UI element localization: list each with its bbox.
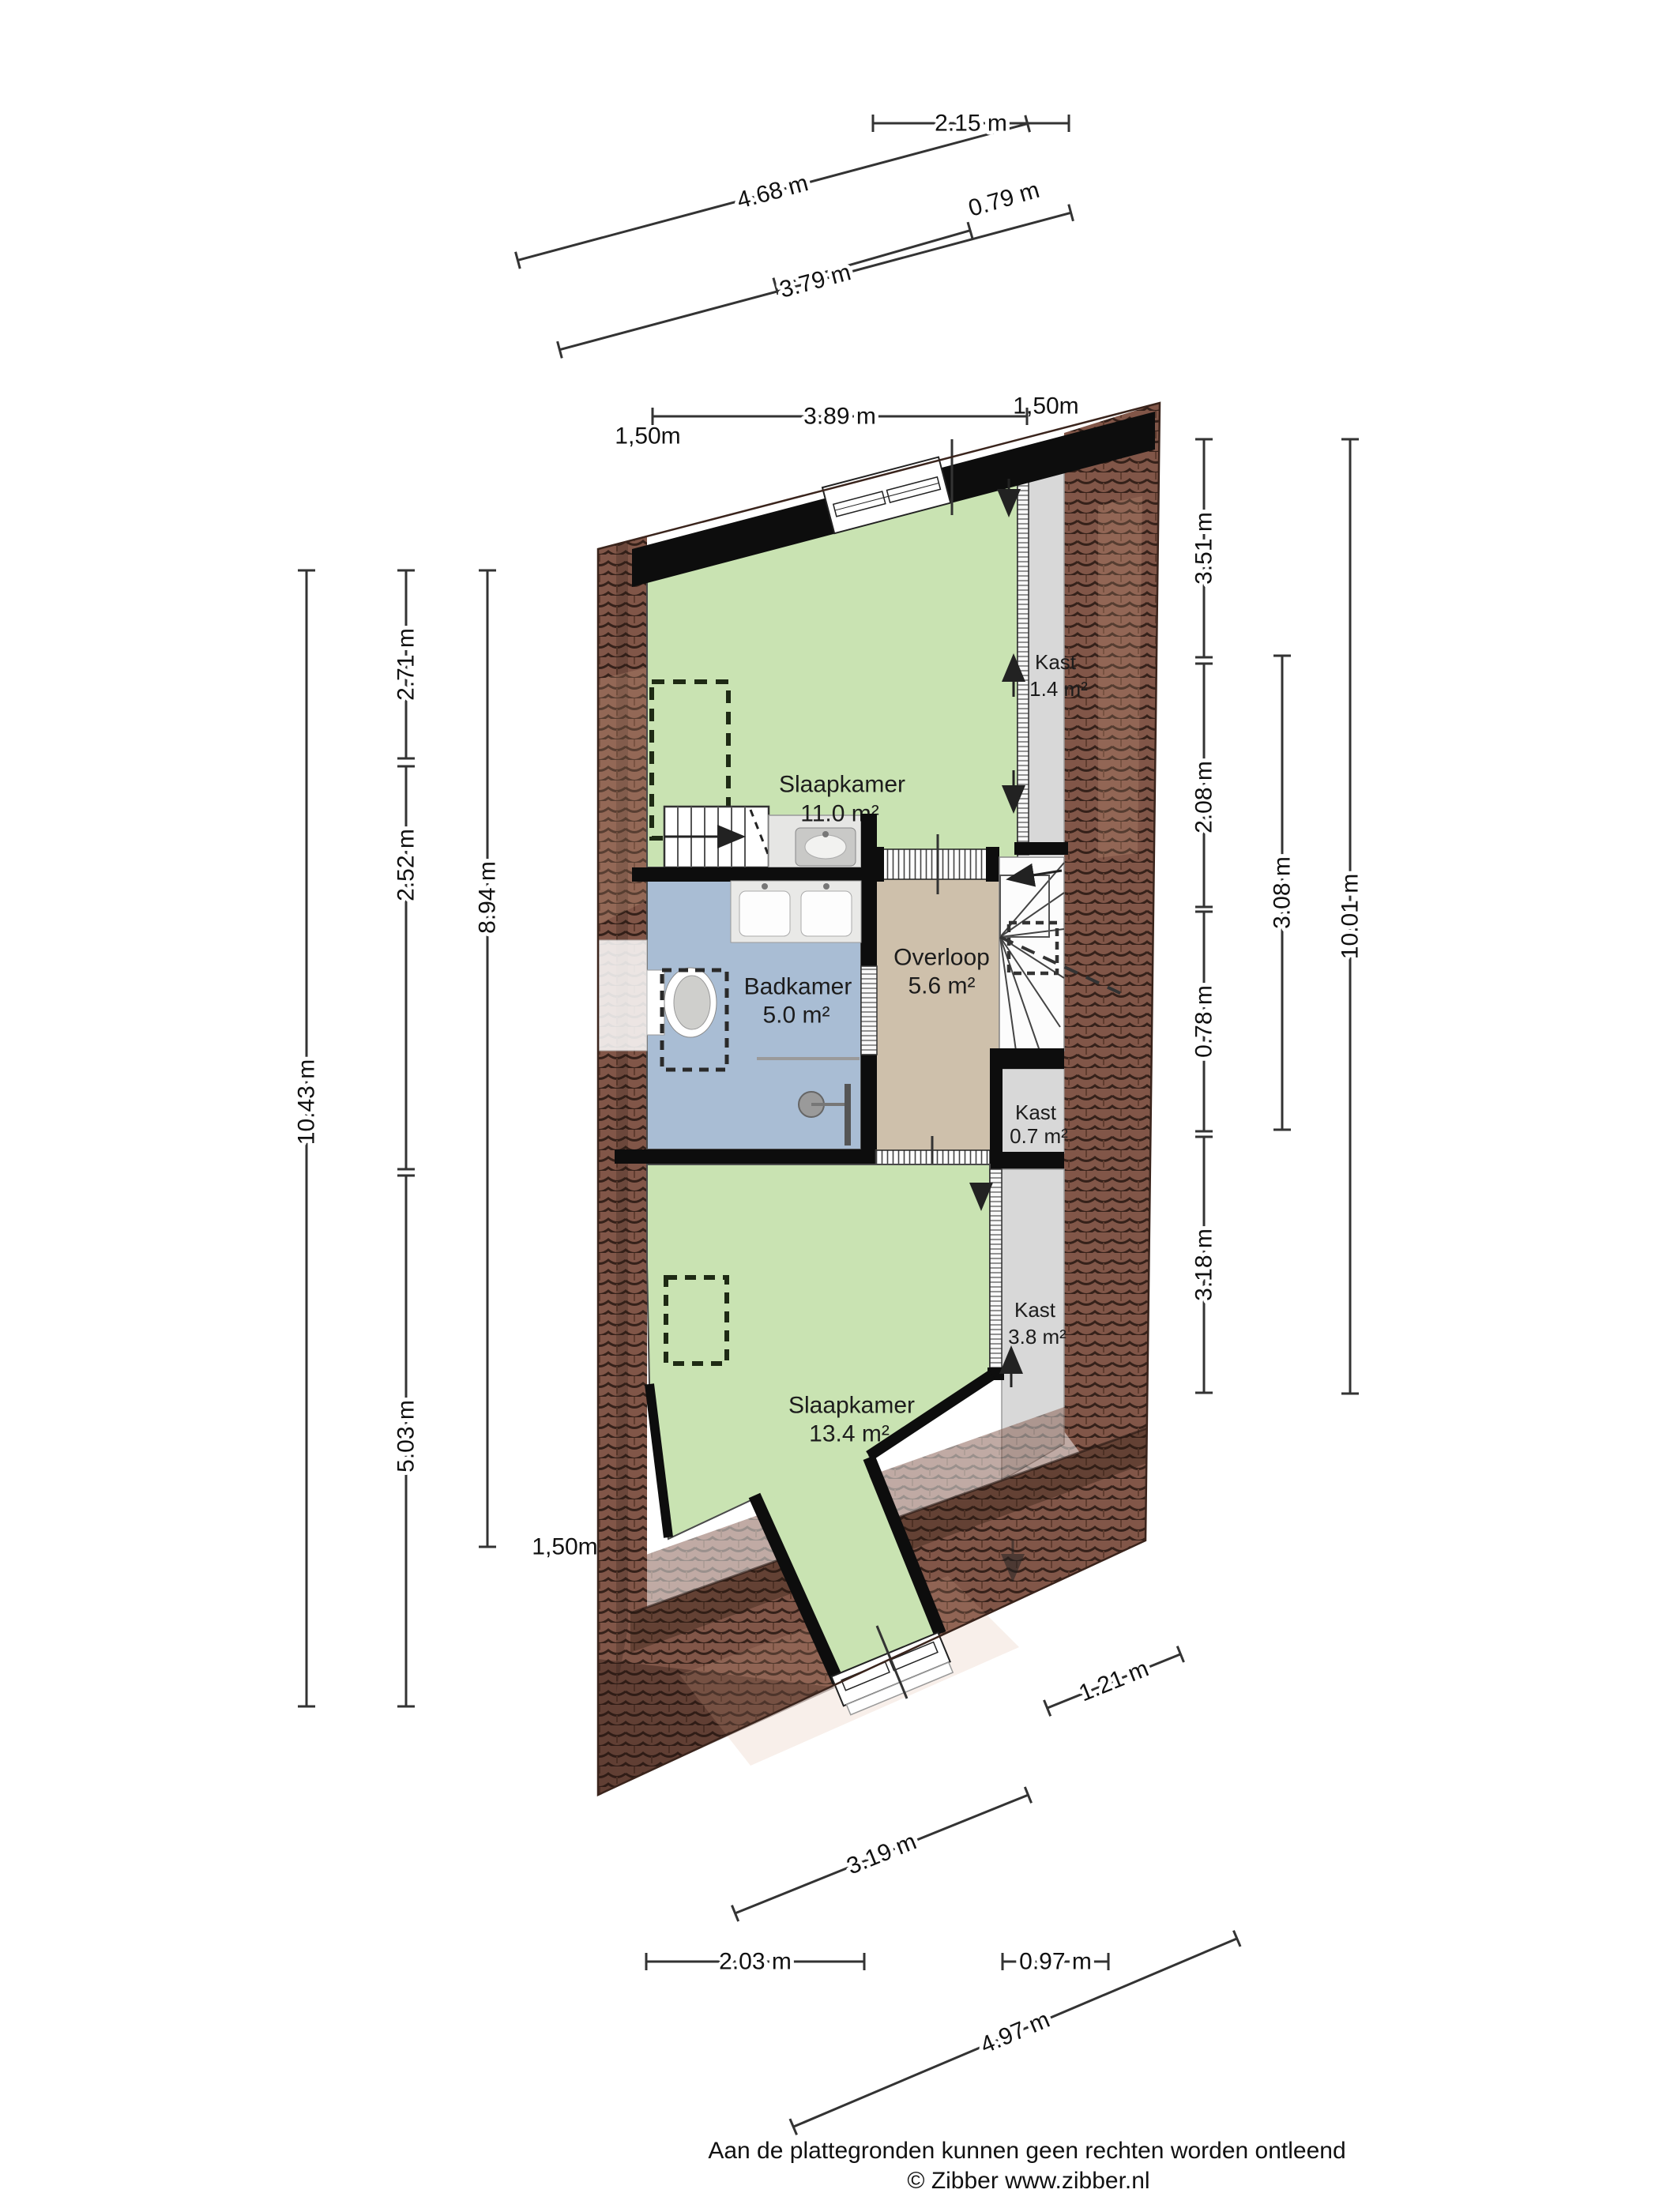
svg-text:0.79 m: 0.79 m	[965, 177, 1042, 222]
height-mark-left: 1,50m	[615, 423, 680, 450]
sink-basin	[739, 891, 790, 936]
room-kast-3-area: 3.8 m²	[1008, 1325, 1066, 1349]
dim-10-01: 10.01 m	[1337, 439, 1364, 1394]
dim-3-08: 3.08 m	[1270, 656, 1296, 1130]
svg-text:2.52 m: 2.52 m	[393, 829, 419, 901]
door-post	[871, 847, 884, 882]
room-slaapkamer-1-name: Slaapkamer	[779, 772, 905, 798]
door-post	[986, 847, 999, 882]
dim-4-97: 4.97 m	[788, 1927, 1242, 2139]
faucet-icon	[823, 883, 829, 890]
faucet-icon	[822, 831, 829, 837]
dim-2-03: 2.03 m	[646, 1949, 864, 1975]
svg-text:3.51 m: 3.51 m	[1191, 512, 1217, 585]
svg-text:3.89 m: 3.89 m	[803, 404, 876, 430]
dim-2-08: 2.08 m	[1191, 664, 1217, 907]
svg-text:0.97 m: 0.97 m	[1019, 1949, 1092, 1975]
svg-text:2.15 m: 2.15 m	[935, 111, 1007, 137]
svg-text:2.71 m: 2.71 m	[393, 628, 419, 701]
dim-2-71: 2.71 m	[393, 570, 419, 758]
svg-text:0.78 m: 0.78 m	[1191, 985, 1217, 1058]
dim-10-43: 10.43 m	[294, 570, 320, 1706]
dim-1-21: 1.21 m	[1042, 1642, 1185, 1721]
sink-basin	[805, 835, 846, 859]
door-badkamer	[861, 966, 877, 1055]
svg-text:5.03 m: 5.03 m	[393, 1400, 419, 1473]
height-mark-bottom: 1,50m	[532, 1534, 597, 1560]
svg-text:4.97 m: 4.97 m	[976, 2007, 1053, 2059]
kast-3-sliding-partition	[990, 1169, 1002, 1379]
svg-text:3.19 m: 3.19 m	[843, 1829, 920, 1880]
wall-bedroom-bathroom	[632, 867, 877, 882]
room-slaapkamer-2-area: 13.4 m²	[809, 1421, 890, 1447]
room-kast-2-name: Kast	[1015, 1100, 1057, 1124]
room-badkamer-area: 5.0 m²	[762, 1003, 829, 1029]
toilet-seat	[674, 976, 710, 1029]
dim-8-94: 8.94 m	[475, 570, 501, 1547]
wall-badkamer-bottom	[615, 1149, 875, 1164]
room-overloop-name: Overloop	[893, 945, 990, 971]
svg-text:3.18 m: 3.18 m	[1191, 1228, 1217, 1301]
door-post	[990, 1149, 1002, 1169]
shower-bar	[845, 1084, 851, 1145]
dim-3-89: 3.89 m	[653, 404, 1027, 430]
floorplan-svg: Slaapkamer 11.0 m² Kast 1.4 m²	[0, 0, 1659, 2212]
room-overloop-area: 5.6 m²	[908, 973, 975, 999]
svg-text:10.01 m: 10.01 m	[1337, 874, 1364, 959]
door-overloop-top	[882, 849, 987, 879]
height-mark-right: 1,50m	[1013, 393, 1078, 419]
footer: Aan de plattegronden kunnen geen rechten…	[708, 2138, 1345, 2194]
svg-text:8.94 m: 8.94 m	[475, 861, 501, 934]
room-kast-1-area: 1.4 m²	[1029, 677, 1088, 701]
svg-text:3.08 m: 3.08 m	[1270, 856, 1296, 929]
svg-text:1.21 m: 1.21 m	[1075, 1656, 1152, 1707]
dim-0-78: 0.78 m	[1191, 912, 1217, 1131]
room-kast-1-name: Kast	[1035, 650, 1077, 674]
svg-text:10.43 m: 10.43 m	[294, 1059, 320, 1145]
svg-text:2.08 m: 2.08 m	[1191, 761, 1217, 833]
room-kast-2-area: 0.7 m²	[1010, 1124, 1068, 1148]
dim-5-03: 5.03 m	[393, 1176, 419, 1706]
svg-text:2.03 m: 2.03 m	[719, 1949, 792, 1975]
room-kast-3-name: Kast	[1014, 1298, 1056, 1322]
dim-3-19: 3.19 m	[730, 1783, 1033, 1925]
faucet-icon	[762, 883, 768, 890]
kast-1-wall-bottom	[1014, 842, 1068, 855]
footer-credit: © Zibber www.zibber.nl	[907, 2168, 1149, 2194]
room-badkamer-name: Badkamer	[744, 974, 852, 1000]
dim-3-51: 3.51 m	[1191, 439, 1217, 657]
footer-disclaimer: Aan de plattegronden kunnen geen rechten…	[708, 2138, 1345, 2164]
roof-right-light	[1098, 496, 1142, 858]
sink-basin	[801, 891, 852, 936]
roof-left-light	[598, 668, 647, 924]
dim-0-97: 0.97 m	[1003, 1949, 1108, 1975]
stairs-straight	[664, 807, 773, 867]
floorplan-page: Slaapkamer 11.0 m² Kast 1.4 m²	[0, 0, 1659, 2212]
dim-3-79: 3.79 m	[556, 200, 1074, 362]
dim-3-18: 3.18 m	[1191, 1137, 1217, 1393]
dim-2-52: 2.52 m	[393, 766, 419, 1169]
roof-recess	[599, 940, 647, 1051]
kast-1-sliding-partition	[1018, 474, 1029, 855]
dim-2-15: 2.15 m	[873, 111, 1069, 137]
svg-text:4.68 m: 4.68 m	[734, 170, 811, 214]
svg-text:3.79 m: 3.79 m	[777, 259, 853, 303]
room-slaapkamer-2-name: Slaapkamer	[788, 1393, 915, 1419]
room-overloop-floor	[871, 878, 999, 1151]
